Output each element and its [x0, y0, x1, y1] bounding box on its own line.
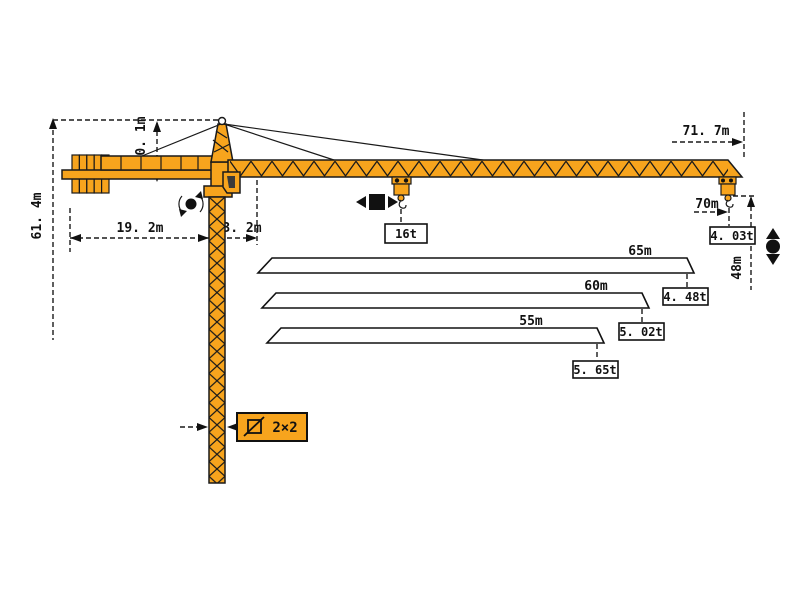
counter-jib [62, 155, 213, 193]
tower-head [211, 124, 233, 162]
tip-load-label: 4. 03t [710, 229, 753, 243]
jib-option-55m: 55m 5. 65t [267, 314, 618, 378]
total-height-label: 61. 4m [30, 192, 45, 239]
jib-length-label: 60m [584, 279, 608, 294]
dimension-tip-radius: 70m [694, 197, 728, 216]
mast-section-label: 2×2 [272, 420, 297, 436]
trolley-wheel [721, 179, 725, 183]
jib-load-label: 5. 02t [619, 325, 662, 339]
mast-section-callout: 2×2 [180, 413, 307, 441]
hoisting-icon [766, 228, 780, 265]
jib-tie-inner [224, 124, 337, 161]
jib-tie-outer [224, 124, 490, 161]
arrow-left-icon [70, 234, 81, 242]
jib-load-label: 4. 48t [663, 290, 706, 304]
arrow-right-icon [197, 423, 208, 431]
counter-jib-beam [62, 170, 213, 179]
apex-pin [219, 118, 226, 125]
crane-diagram-page: 61. 4m 10. 1m 19. 2m 3. 2m 71. 7m 70m 48… [0, 0, 800, 600]
arrow-up-icon [766, 228, 780, 239]
counter-jib-label: 19. 2m [117, 221, 164, 236]
trolley-mid: 16t [385, 177, 427, 243]
mast-lattice [209, 197, 225, 483]
jib-bar [262, 293, 649, 308]
arrow-up-icon [747, 196, 755, 207]
hook-height-label: 48m [730, 256, 745, 280]
jib-lattice [230, 161, 728, 177]
arrow-left-icon [356, 196, 366, 208]
trolley-symbol-square [369, 194, 385, 210]
tip-radius-label: 70m [695, 197, 719, 212]
jib-length-label: 65m [628, 244, 652, 259]
hook-icon [399, 200, 406, 208]
tower-offset-label: 3. 2m [222, 221, 261, 236]
trolley-wheel [395, 178, 399, 182]
hoisting-dot [766, 240, 780, 254]
arc-arrowhead [195, 191, 203, 199]
dimension-max-radius: 71. 7m [672, 112, 744, 160]
counter-jib-platform [101, 156, 213, 170]
arrow-right-icon [732, 138, 743, 146]
jib [223, 160, 742, 193]
arrow-right-icon [198, 234, 209, 242]
jib-bar [258, 258, 694, 273]
arrow-down-icon [766, 254, 780, 265]
jib-bar [267, 328, 604, 343]
counter-jib-tie [142, 124, 221, 156]
arrow-up-icon [153, 121, 161, 132]
jib-length-label: 55m [519, 314, 543, 329]
crane-diagram: 61. 4m 10. 1m 19. 2m 3. 2m 71. 7m 70m 48… [0, 0, 800, 600]
hook-block [721, 184, 735, 195]
arc-arrowhead [179, 209, 187, 217]
slewing-dot [186, 199, 197, 210]
dimension-counter-jib: 19. 2m [70, 208, 209, 252]
max-load-label: 16t [395, 227, 417, 241]
trolley-wheel [729, 179, 733, 183]
slewing-rotation-icon [179, 191, 203, 217]
trolley-travel-icon [356, 194, 398, 210]
hook-block [394, 184, 409, 195]
max-radius-label: 71. 7m [683, 124, 730, 139]
arrow-right-icon [388, 196, 398, 208]
jib-load-label: 5. 65t [573, 363, 616, 377]
trolley-wheel [404, 178, 408, 182]
